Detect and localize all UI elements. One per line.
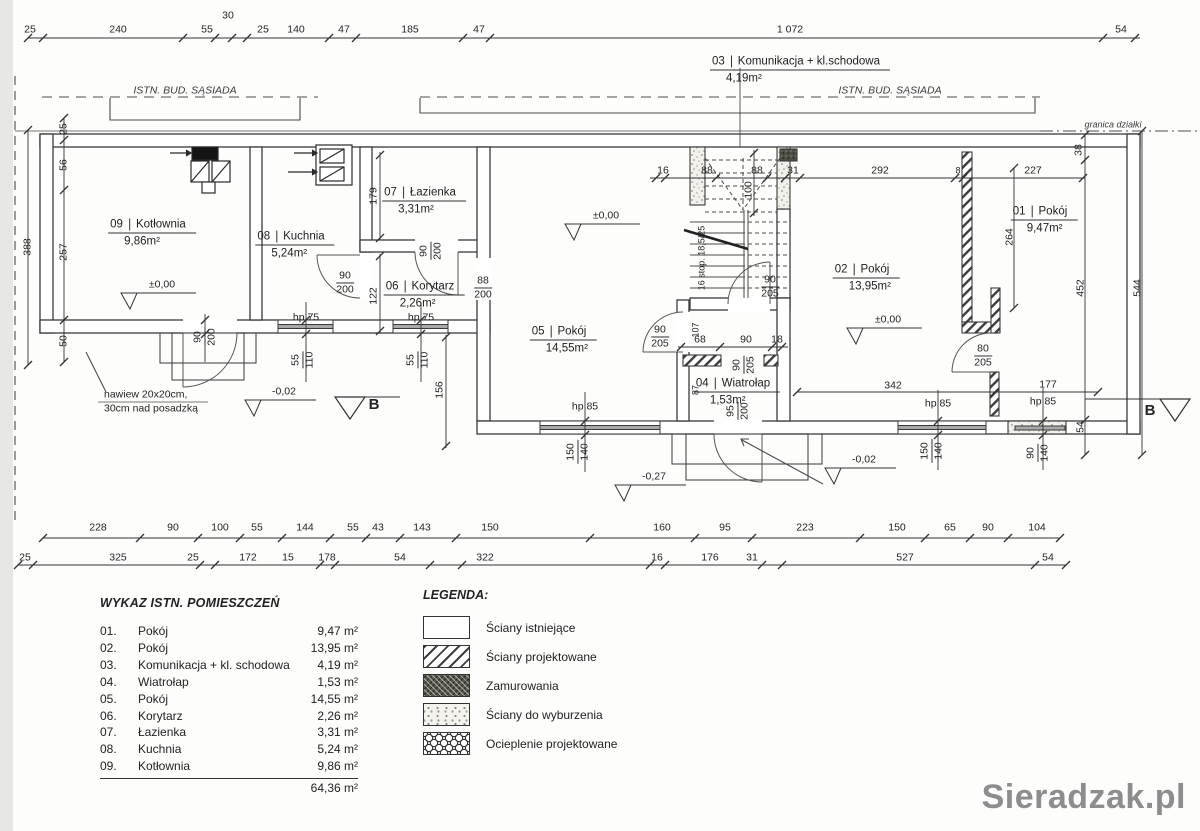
dim-label: 47: [473, 24, 485, 35]
room-area: 3,31m²: [382, 202, 466, 216]
room-area: 5,24m²: [255, 246, 334, 260]
level-label: -0,02: [272, 386, 296, 397]
dim-label: 104: [1028, 522, 1046, 533]
dim-label: 179: [368, 187, 379, 205]
dim-label: 25: [58, 123, 69, 135]
row-area: 9,47 m²: [296, 623, 358, 640]
row-name: Korytarz: [138, 708, 296, 725]
dim-den: 200: [471, 289, 495, 301]
sill-label: hp 75: [408, 312, 434, 323]
dim-label: 8: [955, 166, 960, 175]
row-no: 02.: [100, 640, 138, 657]
dim-num: 55: [405, 351, 418, 369]
dim-label: 25: [257, 24, 269, 35]
sill-label: hp 85: [925, 398, 951, 409]
window-size-label: 90140: [1025, 441, 1050, 465]
legend-label: Ocieplenie projektowane: [486, 737, 617, 751]
dim-num: 90: [192, 328, 205, 346]
dim-label: 90: [740, 334, 752, 345]
demolition-wall-swatch: [423, 703, 470, 726]
row-no: 01.: [100, 623, 138, 640]
window-size-label: 150140: [919, 439, 944, 463]
dim-den: 200: [432, 239, 444, 263]
legend-label: Zamurowania: [486, 679, 559, 693]
row-name: Wiatrołap: [138, 674, 296, 691]
dim-num: 90: [761, 274, 779, 287]
dim-label: 544: [1132, 279, 1143, 297]
dim-label: 227: [1024, 165, 1042, 176]
dim-label: 15: [282, 552, 294, 563]
row-name: Pokój: [138, 623, 296, 640]
schedule-row: 07.Łazienka3,31 m²: [100, 724, 358, 741]
room-number: 04: [696, 378, 716, 390]
room-label-05: 05Pokój 14,55m²: [530, 326, 597, 355]
dim-label: 178: [318, 552, 336, 563]
dim-label: 54: [1075, 421, 1086, 433]
row-no: 09.: [100, 758, 138, 775]
existing-wall-swatch: [423, 616, 470, 639]
dim-label: 322: [476, 552, 494, 563]
legend-label: Ściany istniejące: [486, 621, 575, 635]
dim-label: 55: [201, 24, 213, 35]
dim-label: 95: [719, 522, 731, 533]
room-name: Korytarz: [411, 281, 454, 293]
bricked-up-swatch: [423, 674, 470, 697]
room-area: 14,55m²: [530, 341, 597, 355]
dim-label: 38: [1073, 144, 1084, 156]
door-size-label: 90200: [418, 239, 443, 263]
legend-item: Zamurowania: [423, 674, 658, 697]
room-label-06: 06Korytarz 2,26m²: [384, 281, 465, 310]
door-size-label: 90200: [192, 325, 217, 349]
dim-label: 31: [787, 165, 799, 176]
dim-den: 110: [419, 349, 431, 372]
dim-label: 55: [251, 522, 263, 533]
dim-label: 88: [701, 165, 713, 176]
dim-label: 150: [481, 522, 499, 533]
row-area: 1,53 m²: [296, 674, 358, 691]
legend-item: Ściany do wyburzenia: [423, 703, 658, 726]
planned-wall-swatch: [423, 645, 470, 668]
dim-den: 140: [933, 439, 945, 463]
vent-note: 30cm nad posadzką: [104, 403, 198, 414]
level-label: -0,02: [852, 454, 876, 465]
schedule-row: 04.Wiatrołap1,53 m²: [100, 674, 358, 691]
row-name: Komunikacja + kl. schodowa: [138, 657, 296, 674]
sill-label: hp 75: [293, 312, 319, 323]
schedule-row: 06.Korytarz2,26 m²: [100, 708, 358, 725]
watermark: Sieradzak.pl: [982, 778, 1186, 817]
dim-num: 90: [731, 356, 744, 374]
dim-label: 140: [287, 24, 305, 35]
dim-den: 110: [304, 349, 316, 372]
dim-num: 150: [565, 440, 578, 464]
dim-den: 205: [758, 288, 782, 300]
schedule-row: 08.Kuchnia5,24 m²: [100, 741, 358, 758]
dim-label: 55: [347, 522, 359, 533]
dim-label: 100: [743, 181, 754, 199]
schedule-title: WYKAZ ISTN. POMIESZCZEŃ: [100, 596, 358, 610]
schedule-row: 02.Pokój13,95 m²: [100, 640, 358, 657]
room-name: Łazienka: [410, 187, 456, 199]
room-area: 13,95m²: [833, 279, 900, 293]
row-area: 4,19 m²: [296, 657, 358, 674]
legend-title: LEGENDA:: [423, 588, 658, 602]
row-area: 13,95 m²: [296, 640, 358, 657]
row-area: 14,55 m²: [296, 691, 358, 708]
door-size-label: 90205: [758, 274, 782, 299]
room-schedule: WYKAZ ISTN. POMIESZCZEŃ 01.Pokój9,47 m² …: [100, 596, 358, 795]
dim-label: 25: [19, 552, 31, 563]
door-size-label: 88200: [471, 275, 495, 300]
row-no: 07.: [100, 724, 138, 741]
level-label: -0,27: [642, 471, 666, 482]
dim-label: 452: [1075, 279, 1086, 297]
dim-label: 56: [58, 159, 69, 171]
dim-label: 144: [296, 522, 314, 533]
dim-label: 90: [167, 522, 179, 533]
dim-label: 30: [222, 10, 234, 21]
dim-label: 25: [24, 24, 36, 35]
dim-den: 205: [648, 338, 672, 350]
schedule-row: 03.Komunikacja + kl. schodowa4,19 m²: [100, 657, 358, 674]
dim-label: 54: [394, 552, 406, 563]
room-number: 06: [386, 281, 406, 293]
level-label: ±0,00: [149, 279, 175, 290]
dim-num: 90: [336, 270, 354, 283]
dim-label: 342: [884, 380, 902, 391]
room-name: Kuchnia: [283, 231, 325, 243]
dim-label: 54: [1115, 24, 1127, 35]
window-size-label: 55110: [290, 349, 315, 372]
dim-label: 1 072: [777, 24, 803, 35]
room-name: Komunikacja + kl.schodowa: [738, 56, 880, 68]
room-area: 9,47m²: [1011, 221, 1078, 235]
room-label-02: 02Pokój 13,95m²: [833, 264, 900, 293]
sill-label: hp 85: [1030, 396, 1056, 407]
row-no: 08.: [100, 741, 138, 758]
dim-label: 100: [211, 522, 229, 533]
dim-label: 88: [751, 165, 763, 176]
door-size-label: 90200: [333, 270, 357, 295]
window-size-label: 150140: [565, 440, 590, 464]
dim-label: 65: [944, 522, 956, 533]
room-number: 09: [110, 219, 130, 231]
dim-num: 80: [974, 343, 992, 356]
room-number: 02: [835, 264, 855, 276]
room-name: Pokój: [1039, 206, 1068, 218]
dim-num: 88: [474, 275, 492, 288]
door-size-label: 80205: [971, 343, 995, 368]
room-name: Wiatrołap: [722, 378, 771, 390]
dim-den: 200: [333, 284, 357, 296]
dim-den: 205: [971, 357, 995, 369]
dim-label: 160: [653, 522, 671, 533]
dim-label: 240: [109, 24, 127, 35]
row-name: Pokój: [138, 640, 296, 657]
room-number: 08: [257, 231, 277, 243]
row-area: 2,26 m²: [296, 708, 358, 725]
dim-label: 223: [796, 522, 814, 533]
dim-label: 143: [413, 522, 431, 533]
row-no: 04.: [100, 674, 138, 691]
room-name: Pokój: [861, 264, 890, 276]
plot-boundary-label: granica działki: [1084, 120, 1141, 129]
schedule-row: 09.Kotłownia9,86 m²: [100, 758, 358, 775]
dim-label: 228: [89, 522, 107, 533]
dim-den: 200: [206, 325, 218, 349]
dim-num: 55: [290, 351, 303, 369]
row-no: 06.: [100, 708, 138, 725]
room-label-09: 09Kotłownia 9,86m²: [108, 219, 196, 248]
insulation-swatch: [423, 732, 470, 755]
room-label-04: 04Wiatrołap 1,53m²: [694, 378, 780, 407]
room-number: 07: [384, 187, 404, 199]
row-name: Łazienka: [138, 724, 296, 741]
dim-label: 90: [982, 522, 994, 533]
dim-num: 90: [651, 324, 669, 337]
legend: LEGENDA: Ściany istniejące Ściany projek…: [423, 588, 658, 761]
schedule-row: 05.Pokój14,55 m²: [100, 691, 358, 708]
dim-label: 527: [896, 552, 914, 563]
dim-label: 18: [771, 334, 783, 345]
stairs-note: 16 stop. 18,5/25: [697, 226, 706, 291]
dim-num: 150: [919, 439, 932, 463]
floor-plan-sheet: 25 240 55 30 25 140 47 185 47 1 072 54 2…: [0, 0, 1200, 831]
door-size-label: 90205: [731, 353, 756, 377]
dim-num: 90: [1025, 444, 1038, 462]
dim-den: 140: [579, 440, 591, 464]
row-area: 3,31 m²: [296, 724, 358, 741]
dim-label: 16: [651, 552, 663, 563]
room-label-07: 07Łazienka 3,31m²: [382, 187, 466, 216]
section-marker-b-left: B: [369, 397, 380, 413]
room-area: 4,19m²: [710, 71, 890, 85]
schedule-total: 64,36 m²: [100, 778, 358, 795]
row-name: Pokój: [138, 691, 296, 708]
room-label-08: 08Kuchnia 5,24m²: [255, 231, 334, 260]
neighbor-building-label: ISTN. BUD. SĄSIADA: [838, 85, 941, 96]
row-name: Kuchnia: [138, 741, 296, 758]
dim-label: 25: [187, 552, 199, 563]
room-name: Pokój: [558, 326, 587, 338]
room-number: 03: [712, 56, 732, 68]
dim-label: 292: [871, 165, 889, 176]
room-area: 1,53m²: [694, 393, 780, 407]
schedule-row: 01.Pokój9,47 m²: [100, 623, 358, 640]
room-area: 9,86m²: [108, 234, 196, 248]
level-label: ±0,00: [593, 210, 619, 221]
row-no: 05.: [100, 691, 138, 708]
sill-label: hp 85: [572, 401, 598, 412]
room-area: 2,26m²: [384, 296, 465, 310]
room-number: 01: [1013, 206, 1033, 218]
dim-label: 43: [372, 522, 384, 533]
row-no: 03.: [100, 657, 138, 674]
dim-label: 172: [239, 552, 257, 563]
dim-label: 50: [58, 335, 69, 347]
room-label-03: 03Komunikacja + kl.schodowa 4,19m²: [710, 56, 890, 85]
level-label: ±0,00: [875, 314, 901, 325]
room-name: Kotłownia: [136, 219, 186, 231]
dim-label: 150: [888, 522, 906, 533]
neighbor-building-label: ISTN. BUD. SĄSIADA: [133, 85, 236, 96]
row-name: Kotłownia: [138, 758, 296, 775]
dim-label: 107: [691, 322, 700, 337]
vent-note: nawiew 20x20cm,: [104, 389, 187, 400]
dim-label: 257: [58, 243, 69, 261]
door-size-label: 90205: [648, 324, 672, 349]
legend-item: Ściany projektowane: [423, 645, 658, 668]
row-area: 9,86 m²: [296, 758, 358, 775]
dim-den: 205: [745, 353, 757, 377]
dim-label: 325: [109, 552, 127, 563]
dim-den: 140: [1039, 441, 1051, 465]
dim-label: 54: [1042, 552, 1054, 563]
dim-label: 176: [701, 552, 719, 563]
dim-num: 90: [418, 242, 431, 260]
dim-label: 156: [434, 381, 445, 399]
row-area: 5,24 m²: [296, 741, 358, 758]
legend-item: Ocieplenie projektowane: [423, 732, 658, 755]
dim-label: 122: [368, 287, 379, 305]
dim-label: 16: [657, 165, 669, 176]
legend-item: Ściany istniejące: [423, 616, 658, 639]
dim-label: 388: [22, 238, 33, 256]
room-number: 05: [532, 326, 552, 338]
dim-label: 31: [746, 552, 758, 563]
room-label-01: 01Pokój 9,47m²: [1011, 206, 1078, 235]
dim-label: 47: [338, 24, 350, 35]
dim-label: 185: [401, 24, 419, 35]
dim-label: 177: [1039, 379, 1057, 390]
window-size-label: 55110: [405, 349, 430, 372]
legend-label: Ściany do wyburzenia: [486, 708, 603, 722]
section-marker-b-right: B: [1145, 403, 1156, 419]
legend-label: Ściany projektowane: [486, 650, 597, 664]
